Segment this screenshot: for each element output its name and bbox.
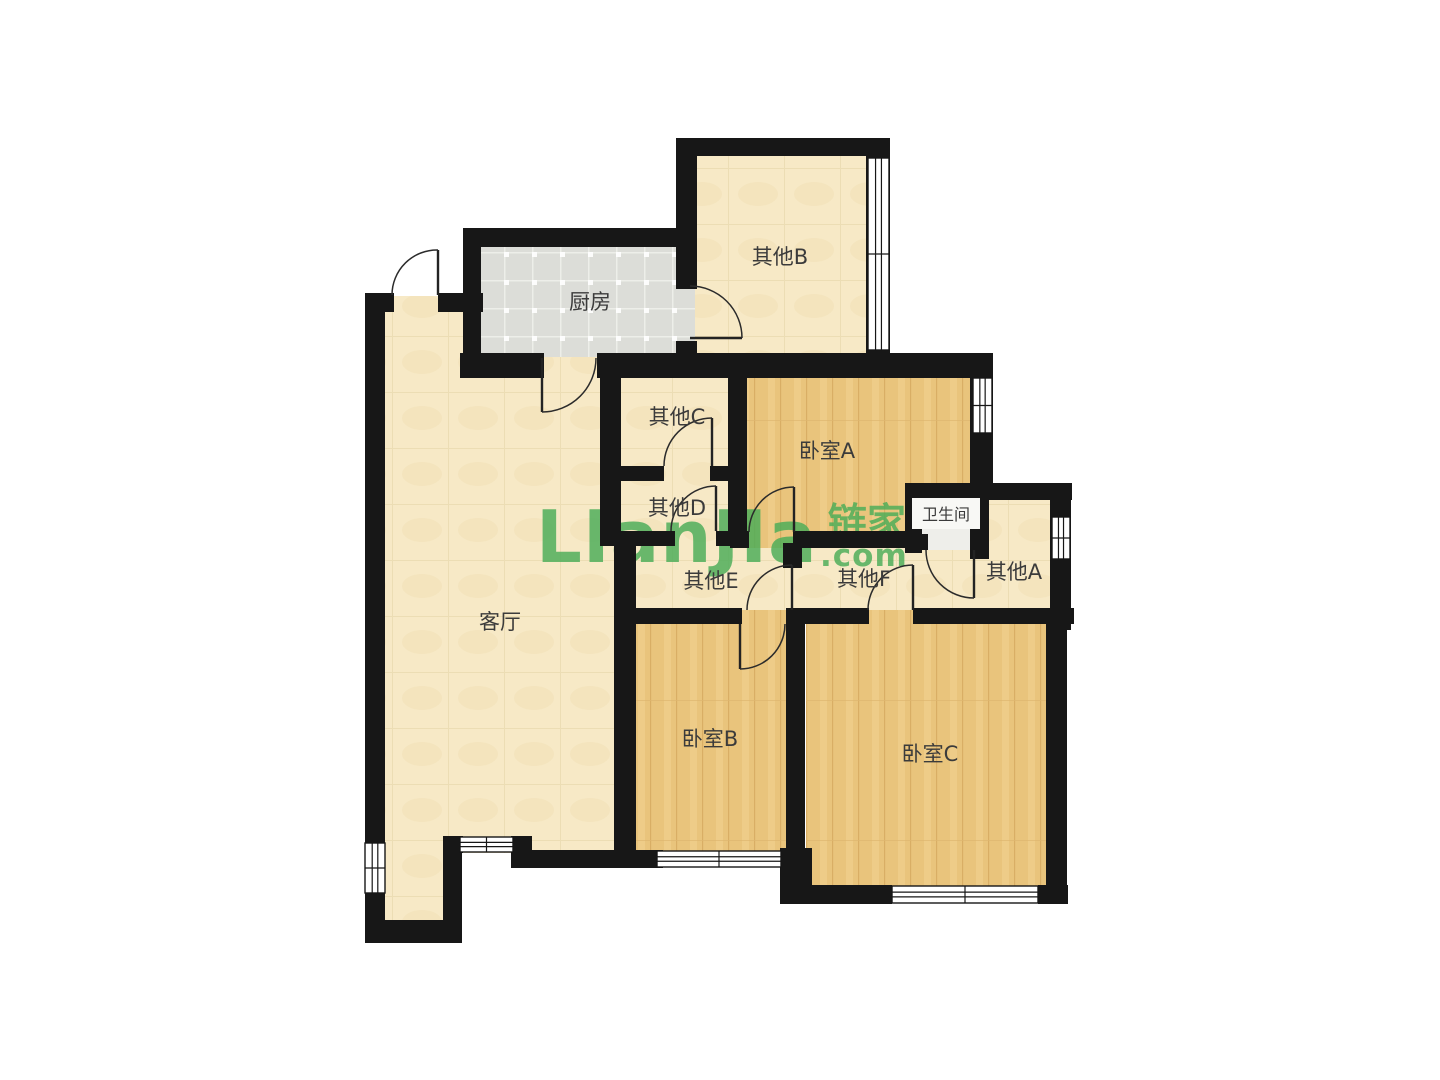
wall xyxy=(600,531,675,546)
wall xyxy=(905,534,928,550)
room-label-bedroom-b: 卧室B xyxy=(682,727,738,751)
wall xyxy=(1046,610,1067,904)
wall xyxy=(728,353,747,546)
wall xyxy=(793,531,920,548)
wall xyxy=(463,228,481,358)
room-label-other-f: 其他F xyxy=(837,567,891,591)
wall xyxy=(443,850,462,943)
wall xyxy=(614,608,742,624)
wall xyxy=(460,353,544,378)
wall xyxy=(730,531,749,548)
room-label-kitchen: 厨房 xyxy=(569,290,611,314)
window xyxy=(365,843,385,893)
room-label-bedroom-a: 卧室A xyxy=(799,439,856,463)
wall xyxy=(618,466,664,481)
room-label-other-b: 其他B xyxy=(752,245,808,269)
wall xyxy=(786,608,805,856)
room-label-other-d: 其他D xyxy=(648,496,706,520)
wall xyxy=(676,138,890,156)
floorplan-svg: LIanJIa 链家 .com 客厅其他E其他F厨房其他B其他C其他D卧室A其他… xyxy=(0,0,1440,1080)
wall xyxy=(614,543,636,855)
room-label-other-a: 其他A xyxy=(986,560,1043,584)
window xyxy=(868,158,889,350)
window xyxy=(460,837,513,852)
wall xyxy=(783,885,892,904)
floorplan-canvas: LIanJIa 链家 .com 客厅其他E其他F厨房其他B其他C其他D卧室A其他… xyxy=(0,0,1440,1080)
window xyxy=(973,378,992,433)
wall xyxy=(600,353,621,545)
window xyxy=(1052,517,1070,559)
wall xyxy=(676,138,697,289)
wall xyxy=(365,293,394,312)
wall xyxy=(597,353,993,378)
floor-foyer xyxy=(383,838,445,925)
door-swing xyxy=(392,250,438,295)
wall xyxy=(616,850,657,868)
room-label-living: 客厅 xyxy=(479,610,521,634)
wall xyxy=(463,228,697,247)
room-label-other-e: 其他E xyxy=(683,569,738,593)
wall xyxy=(783,543,802,568)
room-label-bath: 卫生间 xyxy=(922,505,970,524)
room-label-other-c: 其他C xyxy=(649,405,706,429)
room-label-bedroom-c: 卧室C xyxy=(902,742,959,766)
window xyxy=(657,851,781,867)
wall xyxy=(781,850,796,868)
window xyxy=(892,886,1038,903)
